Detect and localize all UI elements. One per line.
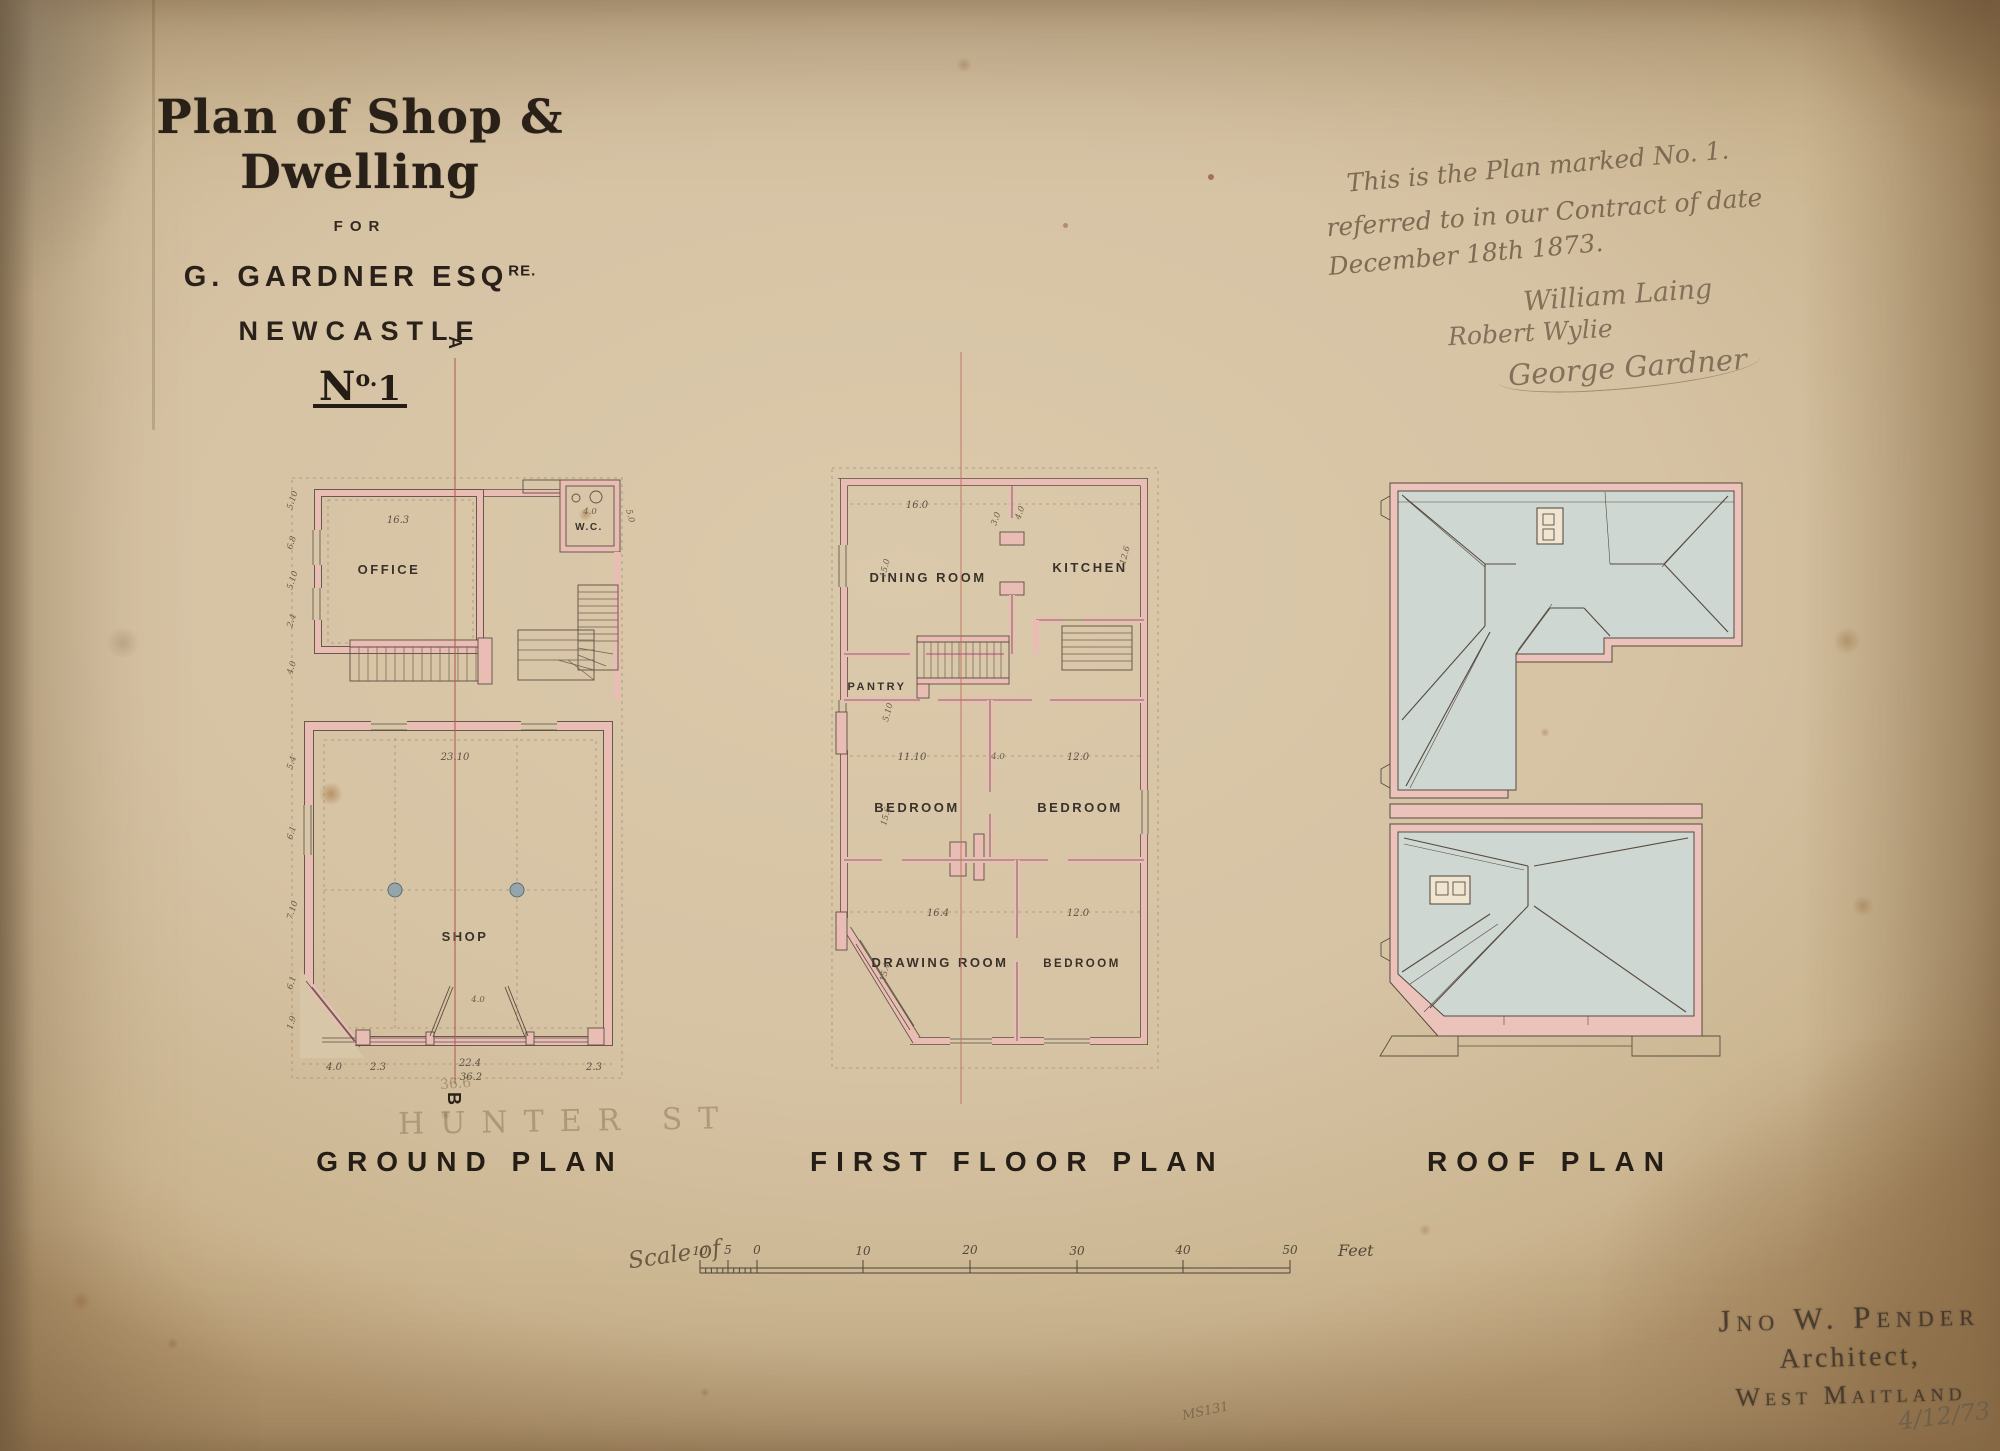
dim-label: 16.3 <box>387 515 409 526</box>
dim-label: 12.0 <box>1067 908 1090 919</box>
side-dimensions: 5.10 6.8 5.10 2.4 4.0 5.4 6.1 7.10 6.1 1… <box>285 489 301 1031</box>
guide-lines <box>324 740 596 1028</box>
scale-tick: 40 <box>1174 1243 1191 1257</box>
scale-tick: 5 <box>724 1243 732 1257</box>
plan-number-value: 1 <box>377 369 401 409</box>
dim-label: 12.6 <box>1118 544 1133 565</box>
dim-label: 5.0 <box>623 508 636 524</box>
scale-tick: 20 <box>961 1243 978 1257</box>
shop-column <box>388 883 402 897</box>
shop-column <box>510 883 524 897</box>
room-label-pantry: PANTRY <box>848 681 907 693</box>
signature-wylie: Robert Wylie <box>1447 314 1613 352</box>
stair-winder <box>518 630 594 680</box>
party-wall <box>1390 804 1702 818</box>
fox-spot <box>105 628 141 658</box>
signature-gardner: George Gardner <box>1497 341 1762 398</box>
pencil-dimension: 36.6 <box>439 1075 471 1093</box>
signature-laing: William Laing <box>1522 273 1713 317</box>
roof-lower <box>1390 824 1702 1036</box>
title-block: Plan of Shop & Dwelling FOR G. GARDNER E… <box>145 90 575 410</box>
stair-right <box>578 552 618 700</box>
dim-label: 5.10 <box>285 569 301 591</box>
dim-label: 5.4 <box>285 755 299 771</box>
fox-spot <box>955 58 973 72</box>
plan-number: No.1 <box>145 363 575 410</box>
first-floor-plan-title: FIRST FLOOR PLAN <box>810 1146 1190 1178</box>
scale-tick: 0 <box>753 1243 761 1257</box>
dim-label: 2.3 <box>585 1062 602 1073</box>
stamp-name: Jno W. Pender <box>1689 1296 2000 1340</box>
dim-label: 16.0 <box>906 500 929 511</box>
ground-plan-drawing: OFFICE 16.3 W.C. 4.0 5.0 <box>278 470 634 1118</box>
dim-label: 1.9 <box>285 1014 299 1031</box>
scale-tick: 10 <box>855 1244 871 1258</box>
stair-main <box>350 638 492 684</box>
room-label-kitchen: KITCHEN <box>1052 560 1127 575</box>
scale-tick: 30 <box>1069 1244 1085 1258</box>
fox-spot <box>1418 1224 1432 1236</box>
dim-label: 5.10 <box>285 489 301 511</box>
for-label: FOR <box>145 218 575 235</box>
dim-label: 11.10 <box>898 752 927 763</box>
roof-upper <box>1390 483 1742 798</box>
dim-label: 4.0 <box>1013 504 1028 522</box>
stain-bottom-left <box>0 1230 260 1451</box>
architect-stamp: Jno W. Pender Architect, West Maitland <box>1689 1296 2000 1414</box>
room-label-bedroom2: BEDROOM <box>1037 800 1122 815</box>
chimney <box>1537 508 1563 544</box>
scale-ruler: 10 5 0 10 20 30 40 50 Feet <box>688 1238 1388 1298</box>
fox-spot <box>1852 896 1874 916</box>
pencil-street-name: HUNTER ST <box>398 1101 735 1142</box>
stairs <box>917 626 1132 698</box>
fox-spot <box>1063 223 1068 228</box>
roof-plinth <box>1380 1036 1720 1056</box>
rear-wall <box>484 480 563 497</box>
client-text: G. GARDNER ESQ <box>184 261 509 293</box>
dim-label: 4.0 <box>325 1062 343 1073</box>
shop-room: 23.10 SHOP <box>301 720 613 1046</box>
fox-spot <box>1208 174 1214 180</box>
scale-tick: 50 <box>1282 1243 1298 1257</box>
section-line-first <box>960 352 962 1104</box>
section-line-ab <box>454 358 456 1084</box>
sheet-title: Plan of Shop & Dwelling <box>145 90 575 200</box>
room-label-drawing: DRAWING ROOM <box>872 955 1009 970</box>
dim-label: 22.4 <box>458 1058 481 1069</box>
catalog-number: MS131 <box>1181 1399 1230 1423</box>
client-suffix: RE. <box>508 262 536 279</box>
guide-lines <box>292 478 622 1078</box>
edge-left <box>0 0 34 1451</box>
room-label-shop: SHOP <box>442 929 489 944</box>
wall-brackets <box>1381 496 1390 961</box>
fox-spot <box>700 1388 710 1397</box>
room-label-office: OFFICE <box>358 562 421 577</box>
section-marker-a: A <box>444 336 465 349</box>
dim-label: 12.0 <box>1067 752 1090 763</box>
dim-label: 4.0 <box>470 995 485 1005</box>
fox-spot <box>70 1292 92 1310</box>
roof-plan-title: ROOF PLAN <box>1390 1146 1710 1178</box>
room-label-wc: W.C. <box>575 522 603 533</box>
dim-label: 2.3 <box>369 1062 386 1073</box>
stamp-role: Architect, <box>1690 1338 2000 1378</box>
torn-corner <box>1860 0 2000 110</box>
ground-plan-title: GROUND PLAN <box>305 1146 635 1178</box>
room-label-bedroom3: BEDROOM <box>1043 958 1121 970</box>
dim-label: 5.10 <box>881 701 896 722</box>
dim-label: 4.0 <box>582 507 597 517</box>
dim-label: 16.4 <box>927 908 949 919</box>
dim-label: 4.0 <box>990 752 1005 762</box>
scale-bar: Scale of 10 5 0 10 20 30 40 <box>628 1238 1408 1298</box>
dim-label: 7.10 <box>285 899 301 921</box>
fox-spot <box>166 1338 179 1349</box>
plan-number-n: N <box>319 363 356 410</box>
section-marker-b: B <box>443 1092 464 1105</box>
drawing-sheet: Plan of Shop & Dwelling FOR G. GARDNER E… <box>0 0 2000 1451</box>
plan-number-o: o. <box>355 366 377 392</box>
client-name: G. GARDNER ESQRE. <box>145 261 575 294</box>
dim-label: 3.0 <box>989 510 1003 527</box>
stain-top-left <box>0 0 160 300</box>
office-room: OFFICE 16.3 <box>311 490 484 654</box>
roof-plan-drawing <box>1372 468 1756 1098</box>
dim-label: 6.1 <box>285 975 299 991</box>
dim-label: 6.1 <box>285 825 299 841</box>
city-label: NEWCASTLE <box>145 316 575 347</box>
dim-label: 6.8 <box>285 534 299 551</box>
dim-label: 4.0 <box>285 659 299 676</box>
first-floor-drawing: DINING ROOM KITCHEN PANTRY BEDROOM BEDRO… <box>822 460 1166 1128</box>
wc-room: W.C. 4.0 5.0 <box>560 480 636 552</box>
fox-spot <box>1832 628 1862 654</box>
scale-tick: 10 <box>692 1244 708 1258</box>
scale-unit: Feet <box>1337 1241 1374 1260</box>
dim-label: 2.4 <box>285 613 299 630</box>
edge-right <box>1800 0 2000 1451</box>
